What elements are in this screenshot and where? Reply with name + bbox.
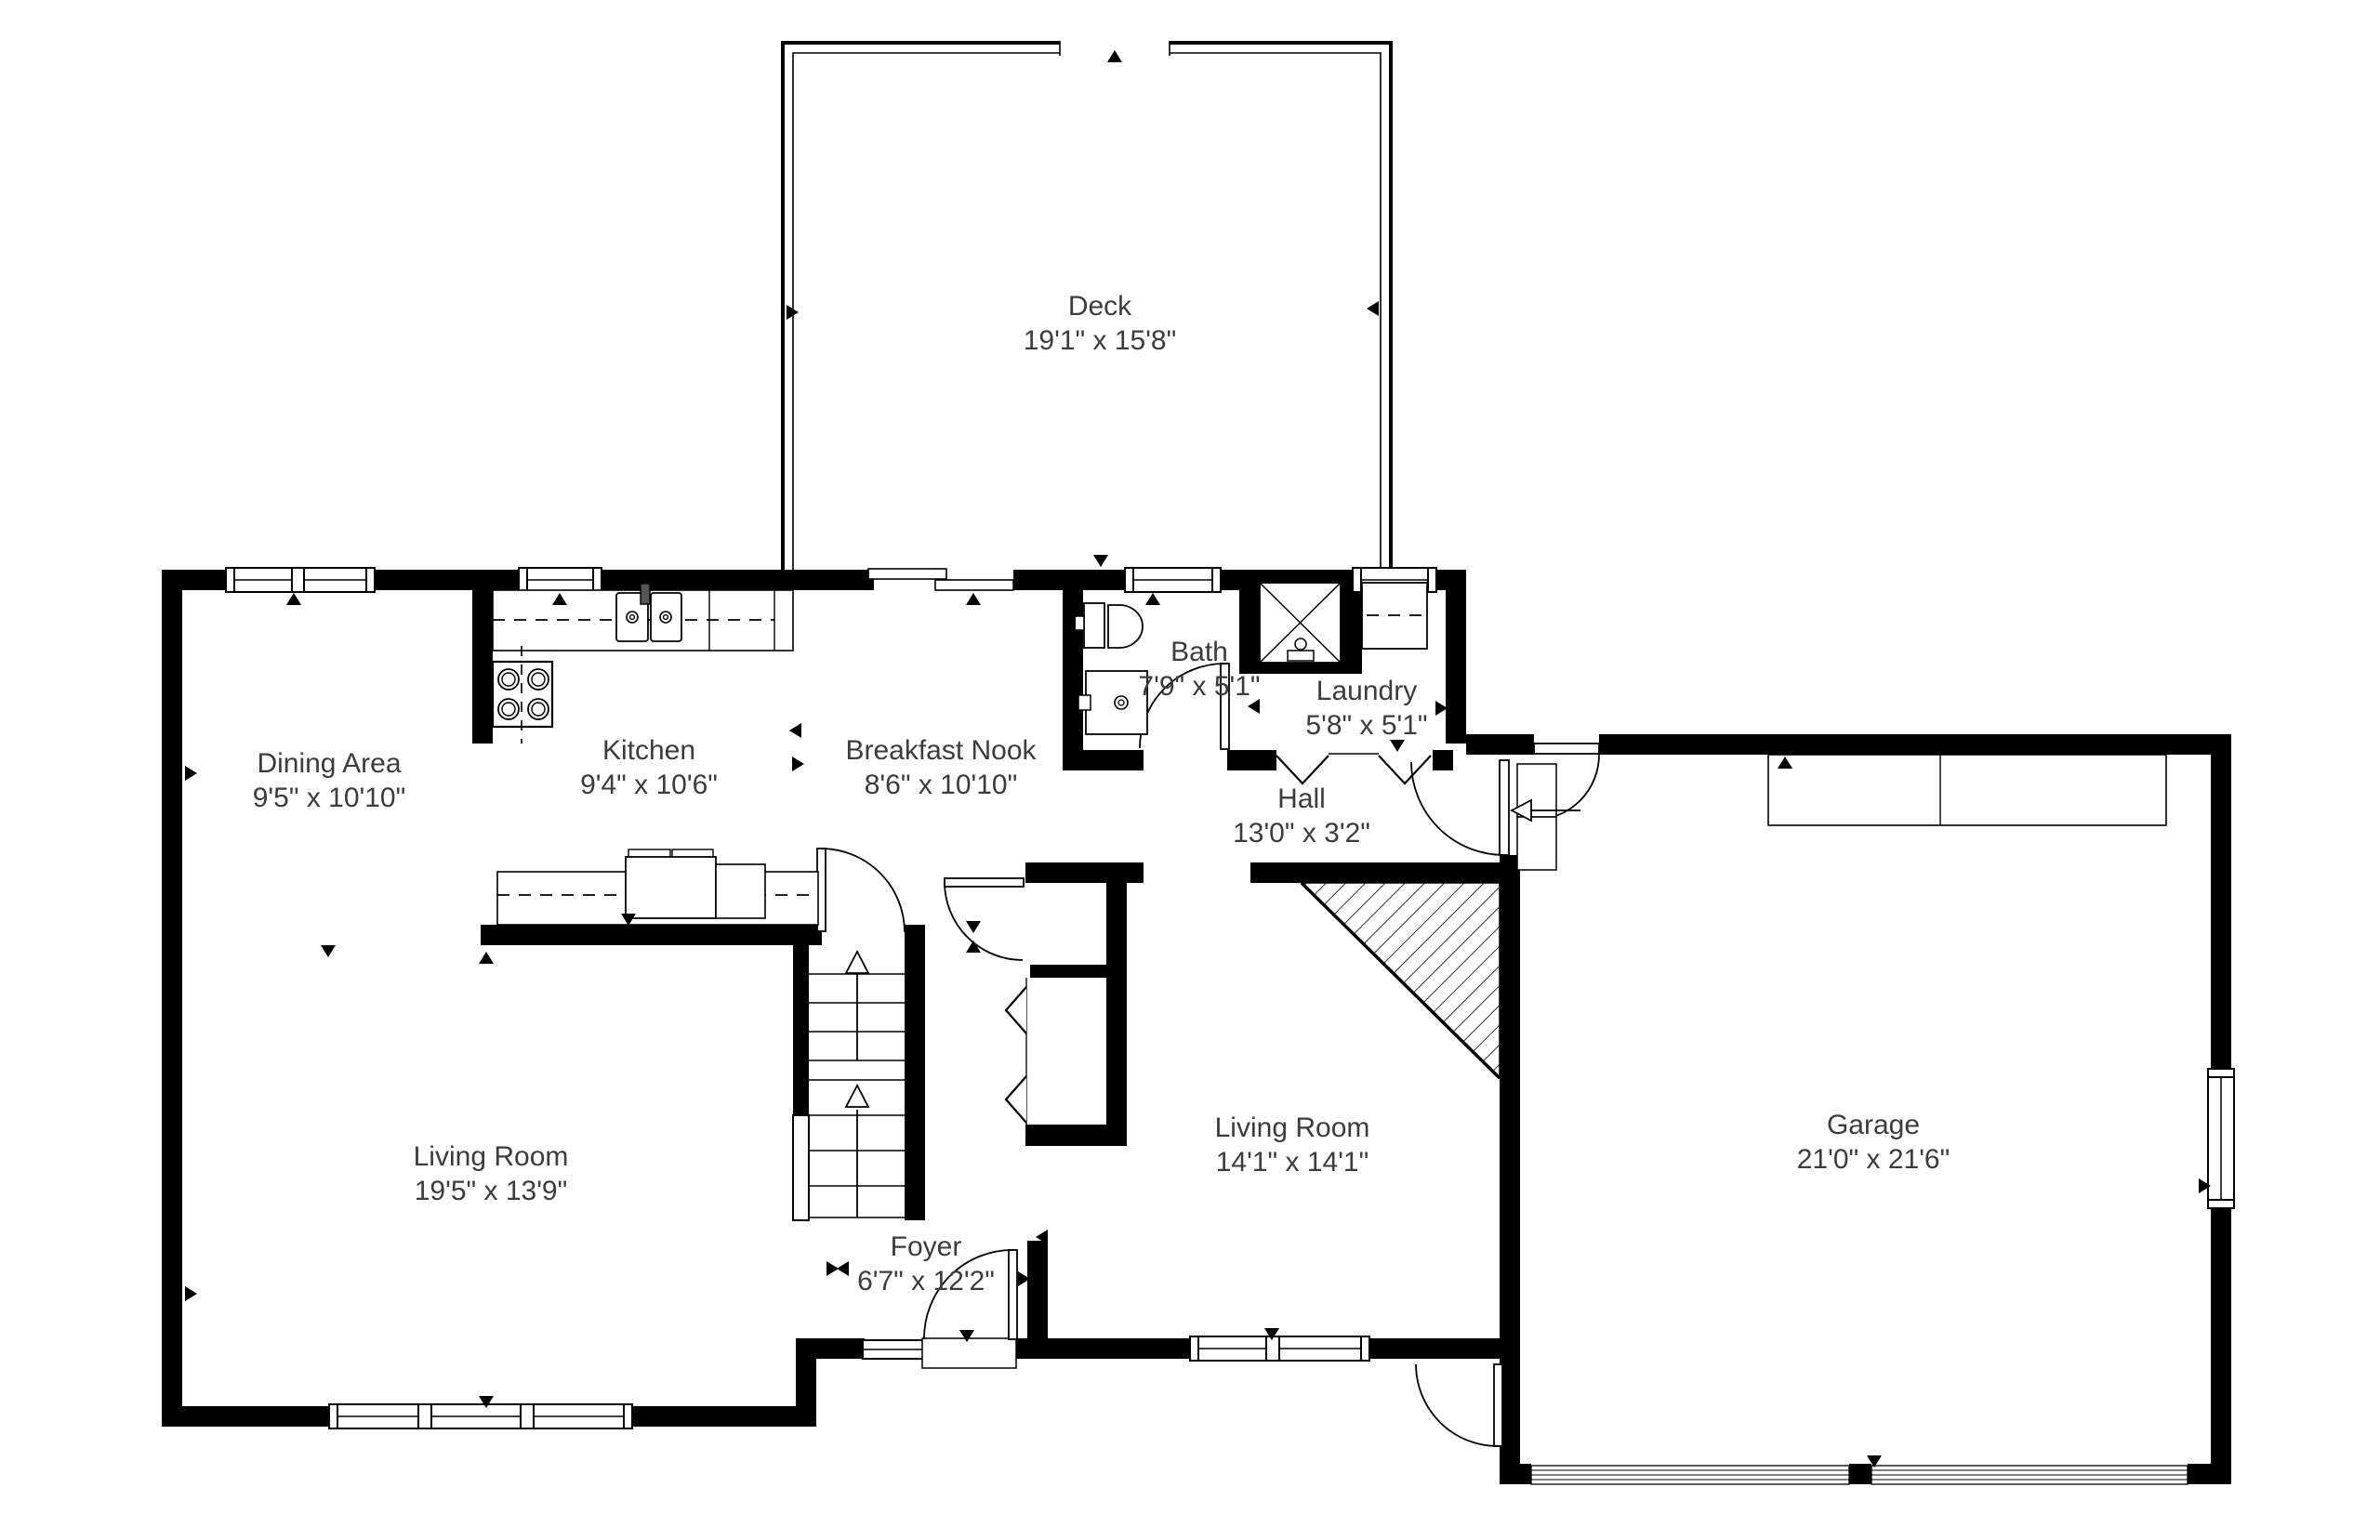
deck-railing xyxy=(783,37,1391,570)
wall-marker-left-icon xyxy=(837,1261,849,1276)
shower-icon xyxy=(1260,583,1341,663)
window-icon-dining xyxy=(226,568,375,592)
interior-walls xyxy=(472,570,1500,1338)
wall-marker-up-icon xyxy=(286,593,301,605)
door-swing-icon-bath xyxy=(1140,664,1229,749)
wall-marker-up-icon xyxy=(479,952,494,964)
floor-plan-page: Deck19'1" x 15'8"Dining Area9'5" x 10'10… xyxy=(0,0,2380,1540)
wall-marker-left-icon xyxy=(1367,301,1379,316)
stove-icon xyxy=(493,646,552,744)
wall-marker-up-icon xyxy=(1145,593,1160,605)
storage-shelf-icon xyxy=(1768,755,2166,825)
garage-door-icon-right xyxy=(1871,1466,2188,1484)
window-icon-living-left xyxy=(329,1404,632,1428)
wall-marker-right-icon xyxy=(185,766,197,781)
window-icon-bath xyxy=(1125,568,1221,592)
basement-stairs-icon xyxy=(1302,883,1500,1078)
staircase-icon xyxy=(809,952,905,1218)
counter-icon-bottom xyxy=(497,849,818,925)
wall-marker-left-icon xyxy=(789,723,801,738)
wall-marker-right-icon xyxy=(185,1286,197,1301)
wall-marker-down-icon xyxy=(1390,740,1405,752)
door-swing-icon-garage-entry xyxy=(1411,760,1509,855)
window-icon-kitchen xyxy=(519,568,602,592)
door-swing-icon-front-entry xyxy=(922,1250,1017,1368)
door-swing-icon-garage-side xyxy=(1416,1364,1502,1446)
sliding-door-icon-deck xyxy=(868,569,1013,590)
kitchen-fixtures xyxy=(493,584,818,925)
stair-railing xyxy=(793,1115,809,1220)
wall-marker-down-icon xyxy=(966,921,981,933)
bifold-door-icon-living-closets xyxy=(1006,978,1026,1125)
wall-marker-up-icon xyxy=(966,593,981,605)
door-swing-icon-hall-closet xyxy=(945,878,1024,960)
garage-door-icon-left xyxy=(1531,1466,1849,1484)
bifold-door-icon-laundry xyxy=(1276,754,1431,783)
garage-details xyxy=(1512,755,2188,1484)
floorplan-svg xyxy=(0,0,2380,1540)
door-swing-icon-basement-stairs xyxy=(817,849,905,932)
wall-marker-down-icon xyxy=(321,945,336,957)
window-icon-garage-right xyxy=(2208,1069,2234,1208)
window-icon-foyer-sidelight xyxy=(863,1340,923,1359)
wall-marker-down-icon xyxy=(1093,555,1108,567)
bathroom-sink-icon xyxy=(1078,671,1147,734)
toilet-icon xyxy=(1075,603,1143,648)
window-icon-living-right xyxy=(1190,1336,1369,1361)
wall-marker-right-icon xyxy=(792,757,804,771)
wall-marker-left-icon xyxy=(1248,699,1260,714)
